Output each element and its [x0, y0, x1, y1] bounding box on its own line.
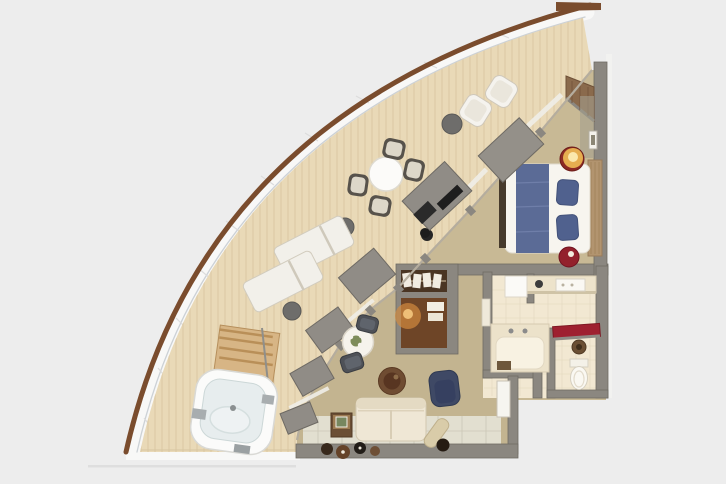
balcony-dining-table [369, 157, 403, 191]
cabinet-picture [336, 417, 347, 427]
table-plant-flower [359, 334, 363, 338]
bath-tray-item [571, 284, 574, 287]
sofa-seam-v [390, 410, 392, 439]
floor-record-label [359, 447, 362, 450]
bolster-end [437, 439, 450, 452]
hot-tub-fitting [191, 408, 206, 420]
wall-bathroom-step [533, 370, 542, 398]
bathroom-door [482, 299, 490, 326]
toilet-bowl [571, 367, 588, 390]
closet-shelf-band [401, 292, 447, 298]
hull-tip-cap [556, 2, 601, 11]
hot-tub-fitting [261, 394, 274, 405]
toilet-tank [570, 359, 588, 367]
bed-pillow [556, 179, 579, 205]
bottom-shadow [88, 465, 296, 468]
armchair-navy-seat [434, 379, 457, 404]
closet-hanging-clothes [422, 273, 431, 288]
floor-record [370, 446, 380, 456]
floor-record [321, 443, 333, 455]
balcony-side-table [283, 302, 301, 320]
closet-folded-stack [428, 313, 443, 321]
wall-bathroom-bottom [547, 390, 608, 398]
wall-picture-art [591, 135, 595, 145]
closet-folded-stack [427, 302, 444, 311]
bath-mat [497, 361, 511, 370]
lamp-core [568, 152, 578, 162]
deck-spot [420, 228, 430, 238]
floorplan-canvas [0, 0, 726, 484]
floor-record-label [341, 450, 345, 454]
candle [568, 251, 574, 257]
bed-pillow [556, 214, 579, 240]
table-plant-flower [358, 343, 362, 347]
sofa-back [356, 398, 426, 409]
bed-duvet [516, 164, 549, 253]
closet-lamp-core [403, 309, 413, 319]
bathtub-faucet [523, 329, 528, 334]
balcony-dining-chair-cushion [350, 176, 366, 194]
hot-tub-drain [230, 405, 236, 411]
bathtub-faucet [509, 329, 514, 334]
bath-tray-item [562, 284, 565, 287]
ottoman-highlight [394, 375, 399, 380]
table-plant-flower [349, 335, 353, 339]
bath-kettle [535, 280, 543, 288]
bath-cabinet [505, 276, 527, 297]
entry-door [497, 381, 510, 417]
floorplan-page [0, 0, 726, 484]
wc-sink-drain [576, 344, 582, 350]
bedside-stool [559, 247, 579, 267]
ottoman-top [384, 373, 401, 390]
closet-hanging-clothes [412, 274, 421, 289]
balcony-side-table [442, 114, 462, 134]
